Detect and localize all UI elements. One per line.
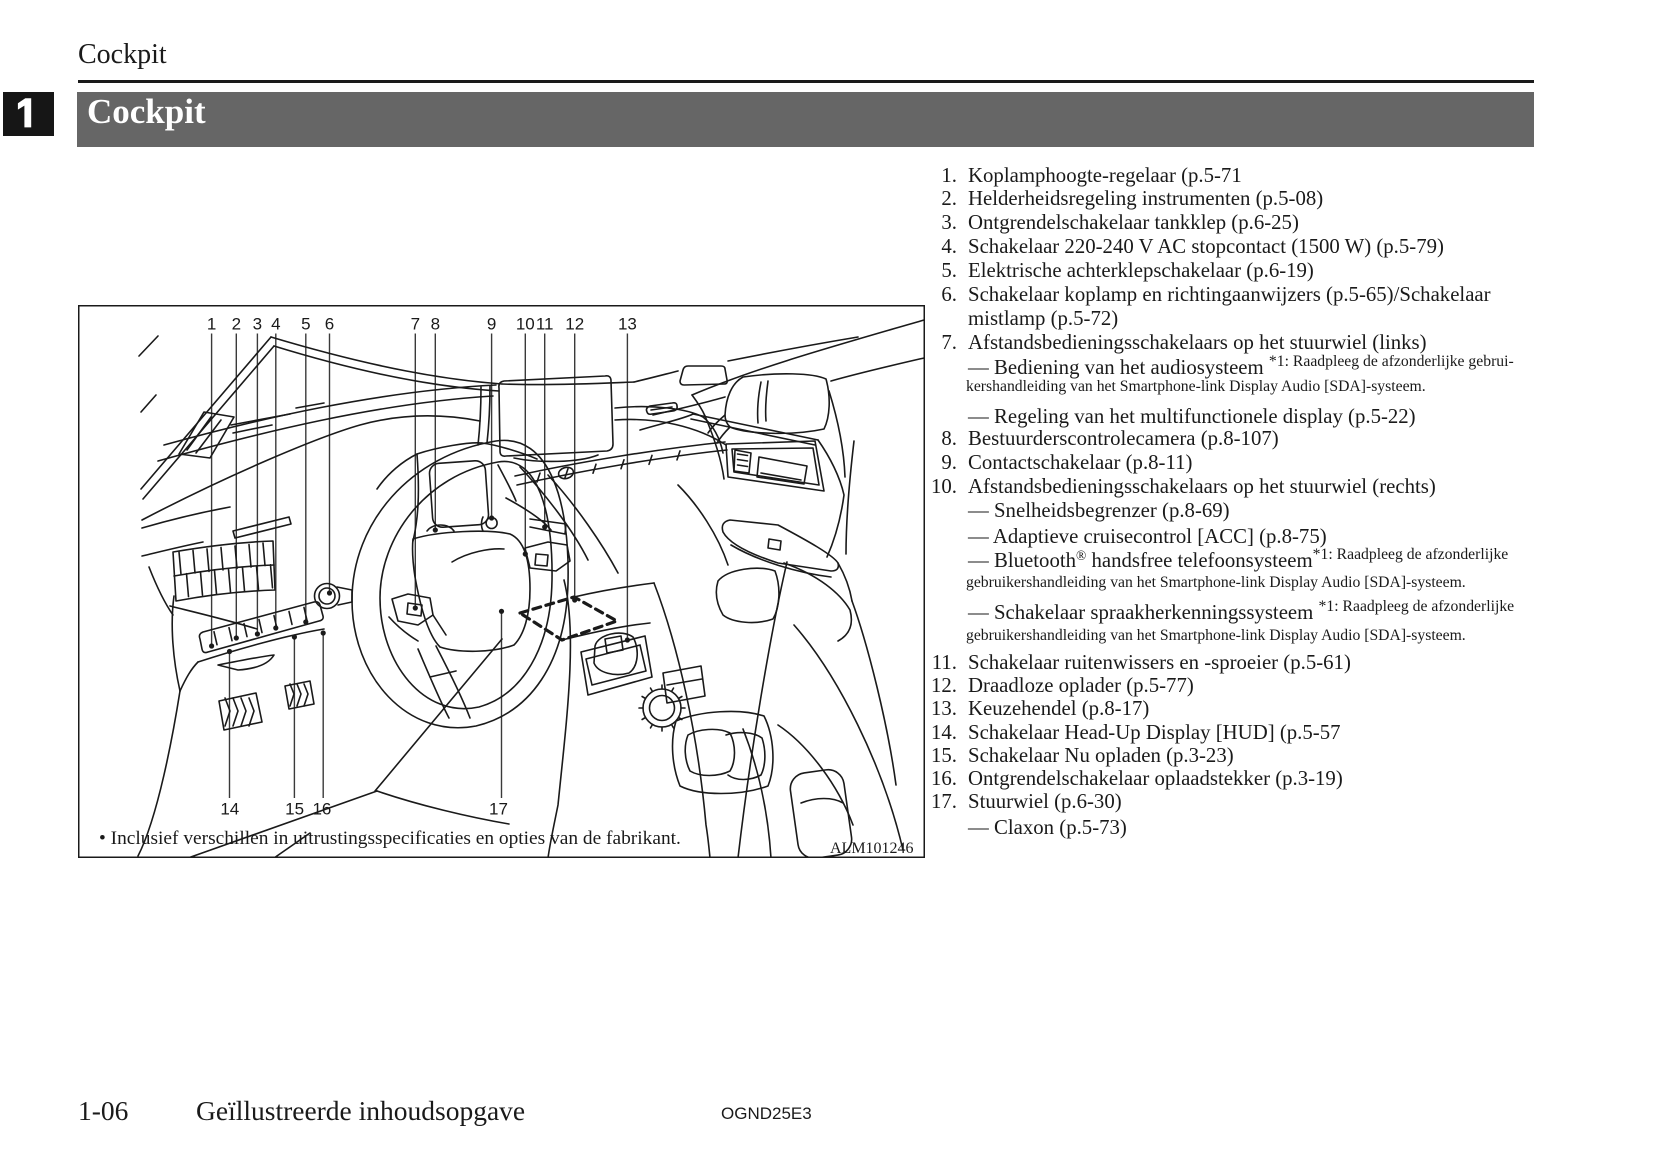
svg-text:5: 5 [301, 315, 310, 334]
svg-text:12: 12 [565, 315, 584, 334]
svg-text:2: 2 [232, 315, 241, 334]
svg-text:11: 11 [536, 315, 554, 334]
svg-text:7: 7 [411, 315, 420, 334]
svg-text:3: 3 [253, 315, 262, 334]
svg-text:9: 9 [487, 315, 496, 334]
svg-text:17: 17 [489, 800, 508, 819]
svg-text:6: 6 [325, 315, 334, 334]
svg-text:4: 4 [271, 315, 280, 334]
svg-text:10: 10 [516, 315, 535, 334]
svg-text:15: 15 [285, 800, 304, 819]
svg-text:14: 14 [220, 800, 239, 819]
svg-text:13: 13 [618, 315, 637, 334]
svg-text:8: 8 [431, 315, 440, 334]
svg-text:1: 1 [207, 315, 216, 334]
